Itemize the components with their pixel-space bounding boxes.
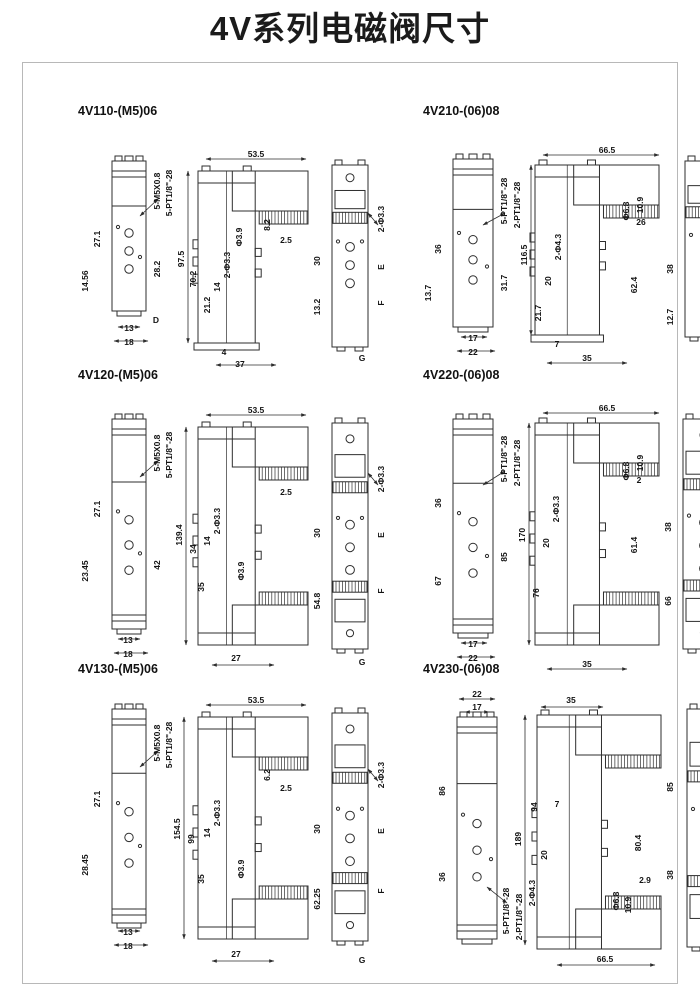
dim-label: 2 bbox=[637, 475, 642, 485]
dim-label: 13 bbox=[124, 323, 134, 333]
dim-label: 66.5 bbox=[597, 954, 614, 964]
dim-label: 17 bbox=[472, 702, 482, 712]
dim-label: E bbox=[376, 828, 386, 834]
dim-label: 189 bbox=[513, 832, 523, 846]
dim-label: 10.9 bbox=[635, 196, 645, 213]
dim-label: 2.5 bbox=[280, 235, 292, 245]
dim-label: 30 bbox=[312, 528, 322, 538]
dim-label: 66.5 bbox=[599, 403, 616, 413]
dim-label: 2-PT1/8"-28 bbox=[514, 893, 524, 940]
dim-label: F bbox=[376, 300, 386, 305]
dim-label: 116.5 bbox=[519, 244, 529, 265]
dim-label: 2-Φ3.3 bbox=[376, 762, 386, 789]
back-view bbox=[332, 708, 368, 945]
dim-label: 5-M5X0.8 bbox=[152, 434, 162, 471]
dim-label: F bbox=[376, 888, 386, 893]
dim-label: F bbox=[376, 588, 386, 593]
panel-title: 4V210-(06)08 bbox=[415, 104, 700, 118]
back-view bbox=[685, 156, 700, 341]
dim-label: 62.25 bbox=[312, 888, 322, 910]
dim-label: 17 bbox=[468, 639, 478, 649]
dim-label: 2-Φ3.3 bbox=[212, 800, 222, 827]
dim-label: 2-Φ4.3 bbox=[527, 880, 537, 907]
dim-label: 30 bbox=[312, 824, 322, 834]
dim-label: Φ3.9 bbox=[236, 859, 246, 878]
dim-label: 10.9 bbox=[635, 454, 645, 471]
panel-drawing: 221786365-PT1/8"-282-PT1/8"-283518994720… bbox=[415, 677, 700, 969]
dim-label: 94 bbox=[529, 802, 539, 812]
dim-label: 99 bbox=[186, 834, 196, 844]
dim-label: 2-Φ3.3 bbox=[376, 206, 386, 233]
dim-label: Φ6.8 bbox=[611, 891, 621, 910]
front-view bbox=[457, 712, 497, 944]
dim-label: 14 bbox=[212, 282, 222, 292]
panel-drawing: 5-PT1/8"-282-PT1/8"-283613.731.7172266.5… bbox=[415, 119, 700, 371]
dim-label: 2.5 bbox=[280, 487, 292, 497]
dim-label: 2-Φ3.3 bbox=[551, 496, 561, 523]
dim-label: 5-PT1/8"-28 bbox=[164, 169, 174, 216]
back-view bbox=[687, 704, 700, 951]
dim-label: 66 bbox=[663, 596, 673, 606]
panel-4v230: 4V230-(06)08 221786365-PT1/8"-282-PT1/8"… bbox=[415, 662, 700, 969]
dim-label: 139.4 bbox=[174, 524, 184, 546]
side-view bbox=[193, 422, 308, 645]
dim-label: 66.5 bbox=[599, 145, 616, 155]
side-view bbox=[193, 712, 308, 939]
dim-label: 2-Φ3.3 bbox=[376, 466, 386, 493]
dim-label: 30 bbox=[312, 256, 322, 266]
dim-label: 62.4 bbox=[629, 276, 639, 293]
dim-label: 38 bbox=[665, 870, 675, 880]
panel-4v110: 4V110-(M5)06 5-M5X0.85-PT1/8"-2827.114.5… bbox=[70, 104, 405, 371]
dim-label: 2-PT1/8"-28 bbox=[512, 439, 522, 486]
panel-drawing: 5-M5X0.85-PT1/8"-2827.123.4542131853.513… bbox=[70, 383, 400, 671]
dim-label: 85 bbox=[665, 782, 675, 792]
dim-label: 2.9 bbox=[639, 875, 651, 885]
dim-label: G bbox=[359, 353, 366, 363]
dim-label: G bbox=[359, 955, 366, 965]
dim-label: 13 bbox=[123, 927, 133, 937]
dim-label: 35 bbox=[196, 582, 206, 592]
front-view bbox=[112, 156, 146, 316]
dim-label: 28.45 bbox=[80, 854, 90, 876]
dim-label: 20 bbox=[541, 538, 551, 548]
dim-label: 7 bbox=[555, 339, 560, 349]
dim-label: 53.5 bbox=[248, 149, 265, 159]
side-view bbox=[532, 710, 661, 949]
panel-title: 4V120-(M5)06 bbox=[70, 368, 405, 382]
dim-label: 8.2 bbox=[262, 219, 272, 231]
panel-4v220: 4V220-(06)08 5-PT1/8"-282-PT1/8"-2836678… bbox=[415, 368, 700, 671]
dim-label: 80.4 bbox=[633, 834, 643, 851]
dim-label: 27.1 bbox=[92, 230, 102, 247]
dim-label: 18 bbox=[123, 941, 133, 951]
dim-label: E bbox=[376, 264, 386, 270]
dim-label: Φ6.8 bbox=[621, 201, 631, 220]
panel-drawing: 5-M5X0.85-PT1/8"-2827.128.45131853.5154.… bbox=[70, 677, 400, 969]
dim-label: 2-Φ4.3 bbox=[553, 234, 563, 261]
dim-label: 17 bbox=[468, 333, 478, 343]
dim-label: 13.7 bbox=[423, 284, 433, 301]
panel-drawing: 5-M5X0.85-PT1/8"-2827.114.5628.21318D53.… bbox=[70, 119, 400, 371]
dim-label: 86 bbox=[437, 786, 447, 796]
side-view bbox=[530, 160, 659, 342]
dim-label: 38 bbox=[663, 522, 673, 532]
front-view bbox=[453, 154, 493, 332]
page-title: 4V系列电磁阀尺寸 bbox=[0, 2, 700, 50]
dim-label: 14 bbox=[202, 536, 212, 546]
panel-title: 4V220-(06)08 bbox=[415, 368, 700, 382]
dim-label: 42 bbox=[152, 560, 162, 570]
dim-label: 4 bbox=[222, 347, 227, 357]
dim-label: 5-PT1/8"-28 bbox=[164, 431, 174, 478]
dim-label: 18 bbox=[124, 337, 134, 347]
dim-label: 20 bbox=[539, 850, 549, 860]
back-view bbox=[683, 414, 700, 653]
dim-label: 31.7 bbox=[499, 274, 509, 291]
dim-label: 70.2 bbox=[188, 270, 198, 287]
panel-title: 4V110-(M5)06 bbox=[70, 104, 405, 118]
dim-label: D bbox=[153, 315, 159, 325]
dim-label: 97.5 bbox=[176, 250, 186, 267]
back-view bbox=[332, 160, 368, 351]
dim-label: 5-M5X0.8 bbox=[152, 724, 162, 761]
front-view bbox=[112, 704, 146, 928]
dim-label: 18 bbox=[123, 649, 133, 659]
side-view bbox=[193, 166, 308, 350]
dim-label: 53.5 bbox=[248, 695, 265, 705]
dim-label: 154.5 bbox=[172, 818, 182, 840]
dim-label: 36 bbox=[437, 872, 447, 882]
dim-label: 27.1 bbox=[92, 790, 102, 807]
dim-label: 35 bbox=[582, 353, 592, 363]
dim-label: 76 bbox=[531, 588, 541, 598]
dim-label: 10.9 bbox=[623, 896, 633, 913]
dim-label: 35 bbox=[566, 695, 576, 705]
front-view bbox=[112, 414, 146, 634]
dim-label: 13.2 bbox=[312, 298, 322, 315]
dim-label: 5-PT1/8"-28 bbox=[164, 721, 174, 768]
dim-label: Φ6.8 bbox=[621, 461, 631, 480]
dim-label: 27.1 bbox=[92, 500, 102, 517]
front-view bbox=[453, 414, 493, 638]
dim-label: 7 bbox=[555, 799, 560, 809]
panel-drawing: 5-PT1/8"-282-PT1/8"-28366785172266.51702… bbox=[415, 383, 700, 671]
dim-label: 67 bbox=[433, 576, 443, 586]
dim-label: 5-M5X0.8 bbox=[152, 172, 162, 209]
dim-label: 14.56 bbox=[80, 270, 90, 292]
dim-label: 36 bbox=[433, 498, 443, 508]
dim-label: 34 bbox=[188, 544, 198, 554]
dim-label: Φ3.9 bbox=[234, 227, 244, 246]
dim-label: 53.5 bbox=[248, 405, 265, 415]
dim-label: 36 bbox=[433, 244, 443, 254]
dim-label: 26 bbox=[636, 217, 646, 227]
dim-label: 38 bbox=[665, 264, 675, 274]
dim-label: 22 bbox=[472, 689, 482, 699]
panel-4v210: 4V210-(06)08 5-PT1/8"-282-PT1/8"-283613.… bbox=[415, 104, 700, 371]
panel-4v120: 4V120-(M5)06 5-M5X0.85-PT1/8"-2827.123.4… bbox=[70, 368, 405, 671]
dim-label: 13 bbox=[123, 635, 133, 645]
dim-label: Φ3.9 bbox=[236, 561, 246, 580]
side-view bbox=[530, 418, 659, 645]
dim-label: 85 bbox=[499, 552, 509, 562]
dim-label: 22 bbox=[468, 347, 478, 357]
dim-label: 2-PT1/8"-28 bbox=[512, 181, 522, 228]
dim-label: 2.5 bbox=[280, 783, 292, 793]
dim-label: 5-PT1/8"-28 bbox=[499, 435, 509, 482]
dim-label: 12.7 bbox=[665, 308, 675, 325]
dim-label: 6.2 bbox=[262, 769, 272, 781]
dim-label: 27 bbox=[231, 949, 241, 959]
panel-title: 4V230-(06)08 bbox=[415, 662, 700, 676]
dim-label: 170 bbox=[517, 528, 527, 542]
dim-label: 2-Φ3.3 bbox=[212, 508, 222, 535]
dim-label: 5-PT1/8"-28 bbox=[499, 177, 509, 224]
dim-label: 2-Φ3.3 bbox=[222, 252, 232, 279]
panel-title: 4V130-(M5)06 bbox=[70, 662, 405, 676]
dim-label: E bbox=[376, 532, 386, 538]
dim-label: 20 bbox=[543, 276, 553, 286]
dim-label: 61.4 bbox=[629, 536, 639, 553]
dim-label: 35 bbox=[196, 874, 206, 884]
dim-label: 14 bbox=[202, 828, 212, 838]
dim-label: 28.2 bbox=[152, 260, 162, 277]
dim-label: 23.45 bbox=[80, 560, 90, 582]
dim-label: 54.8 bbox=[312, 592, 322, 609]
dim-label: 21.2 bbox=[202, 296, 212, 313]
dim-label: 5-PT1/8"-28 bbox=[501, 887, 511, 934]
dim-label: 21.7 bbox=[533, 304, 543, 321]
panel-4v130: 4V130-(M5)06 5-M5X0.85-PT1/8"-2827.128.4… bbox=[70, 662, 405, 969]
back-view bbox=[332, 418, 368, 653]
